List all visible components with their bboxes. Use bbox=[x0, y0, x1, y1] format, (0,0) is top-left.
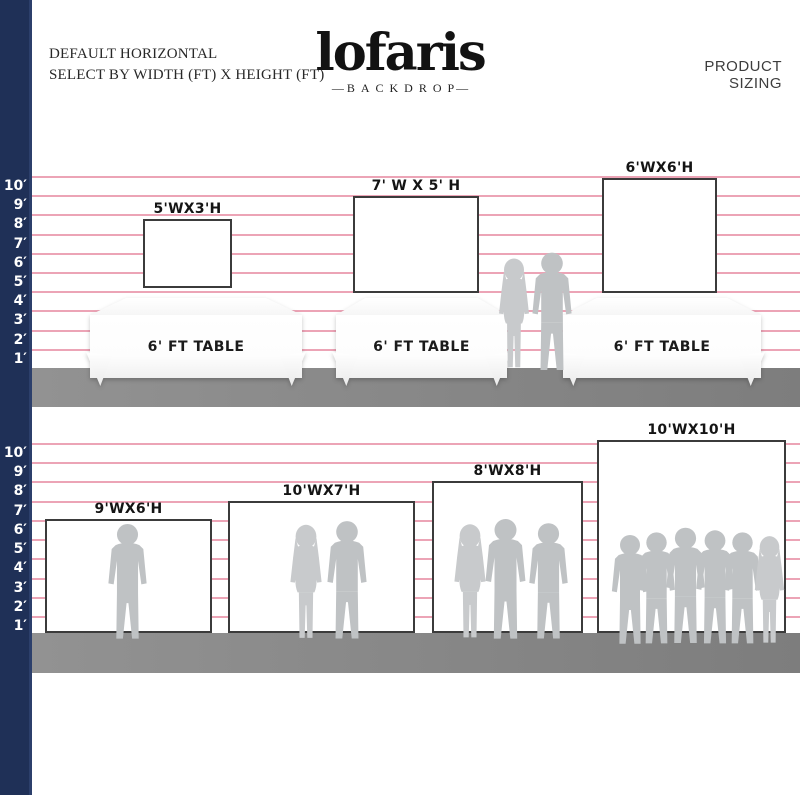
table-3: 6' FT TABLE bbox=[563, 298, 761, 378]
table-2-label: 6' FT TABLE bbox=[373, 339, 470, 355]
table-3-front: 6' FT TABLE bbox=[563, 315, 761, 378]
backdrop-9x6-label: 9'WX6'H bbox=[45, 501, 212, 517]
trio-silhouette-8x8 bbox=[444, 519, 576, 641]
product-sizing-infographic: DEFAULT HORIZONTAL SELECT BY WIDTH (FT) … bbox=[0, 0, 800, 800]
ruler-label-6ft-bottom: 6′ bbox=[0, 522, 27, 538]
backdrop-10x10-label: 10'WX10'H bbox=[597, 422, 786, 438]
brand-logo: lofaris BACKDROP bbox=[280, 26, 520, 96]
table-1-front: 6' FT TABLE bbox=[90, 315, 302, 378]
left-ruler-bar bbox=[0, 0, 32, 795]
table-3-label: 6' FT TABLE bbox=[614, 339, 711, 355]
table-1: 6' FT TABLE bbox=[90, 298, 302, 378]
table-1-top-surface bbox=[90, 298, 302, 315]
ruler-label-1ft-top: 1′ bbox=[0, 351, 27, 367]
backdrop-7x5-label: 7' W X 5' H bbox=[353, 178, 479, 194]
group-silhouette-10x10 bbox=[605, 527, 785, 646]
brand-subtitle: BACKDROP bbox=[280, 81, 520, 96]
table-1-label: 6' FT TABLE bbox=[148, 339, 245, 355]
ruler-label-5ft-bottom: 5′ bbox=[0, 541, 27, 557]
ruler-label-5ft-top: 5′ bbox=[0, 274, 27, 290]
single-man-silhouette bbox=[100, 524, 156, 641]
ruler-label-4ft-bottom: 4′ bbox=[0, 560, 27, 576]
backdrop-6x6-frame bbox=[602, 178, 717, 293]
ruler-label-6ft-top: 6′ bbox=[0, 255, 27, 271]
backdrop-7x5-frame bbox=[353, 196, 479, 293]
ruler-label-1ft-bottom: 1′ bbox=[0, 618, 27, 634]
brand-name: lofaris bbox=[280, 26, 520, 80]
ruler-label-4ft-top: 4′ bbox=[0, 293, 27, 309]
ruler-label-10ft-bottom: 10′ bbox=[0, 445, 27, 461]
ruler-label-7ft-bottom: 7′ bbox=[0, 503, 27, 519]
table-3-top-surface bbox=[563, 298, 761, 315]
table-2-front: 6' FT TABLE bbox=[336, 315, 507, 378]
ruler-label-10ft-top: 10′ bbox=[0, 178, 27, 194]
ruler-label-2ft-top: 2′ bbox=[0, 332, 27, 348]
backdrop-5x3-frame bbox=[143, 219, 232, 288]
ruler-label-8ft-top: 8′ bbox=[0, 216, 27, 232]
table-2: 6' FT TABLE bbox=[336, 298, 507, 378]
couple-silhouette bbox=[487, 252, 579, 372]
couple-silhouette-10x7 bbox=[278, 521, 376, 641]
ruler-label-3ft-bottom: 3′ bbox=[0, 580, 27, 596]
ruler-label-9ft-top: 9′ bbox=[0, 197, 27, 213]
ruler-label-9ft-bottom: 9′ bbox=[0, 464, 27, 480]
ruler-label-3ft-top: 3′ bbox=[0, 312, 27, 328]
ruler-label-7ft-top: 7′ bbox=[0, 236, 27, 252]
table-2-top-surface bbox=[336, 298, 507, 315]
page-title: PRODUCT SIZING bbox=[662, 58, 782, 92]
ruler-label-2ft-bottom: 2′ bbox=[0, 599, 27, 615]
backdrop-5x3-label: 5'WX3'H bbox=[143, 201, 232, 217]
backdrop-10x7-label: 10'WX7'H bbox=[228, 483, 415, 499]
backdrop-8x8-label: 8'WX8'H bbox=[432, 463, 583, 479]
backdrop-6x6-label: 6'WX6'H bbox=[602, 160, 717, 176]
ruler-label-8ft-bottom: 8′ bbox=[0, 483, 27, 499]
